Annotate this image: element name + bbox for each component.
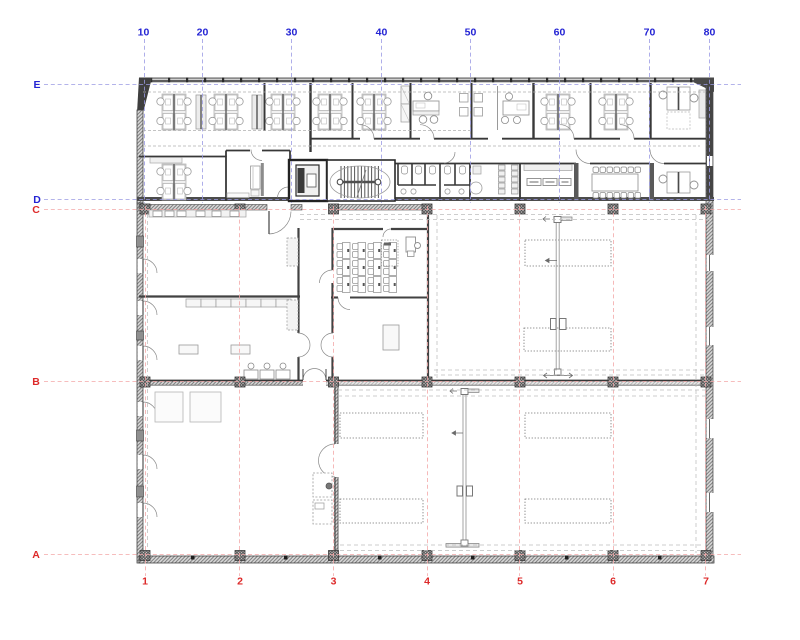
svg-text:6: 6 [610, 576, 616, 588]
svg-text:5: 5 [517, 576, 523, 588]
svg-text:30: 30 [286, 27, 298, 39]
svg-text:E: E [33, 79, 40, 91]
svg-text:2: 2 [237, 576, 243, 588]
svg-text:B: B [32, 376, 40, 388]
svg-text:10: 10 [138, 27, 150, 39]
svg-text:80: 80 [704, 27, 716, 39]
svg-text:A: A [32, 549, 40, 561]
svg-text:1: 1 [142, 576, 148, 588]
svg-text:20: 20 [197, 27, 209, 39]
svg-text:50: 50 [465, 27, 477, 39]
svg-text:40: 40 [376, 27, 388, 39]
svg-text:60: 60 [554, 27, 566, 39]
svg-text:C: C [32, 204, 40, 216]
svg-text:3: 3 [331, 576, 337, 588]
svg-text:7: 7 [703, 576, 709, 588]
svg-text:4: 4 [424, 576, 430, 588]
svg-text:70: 70 [644, 27, 656, 39]
